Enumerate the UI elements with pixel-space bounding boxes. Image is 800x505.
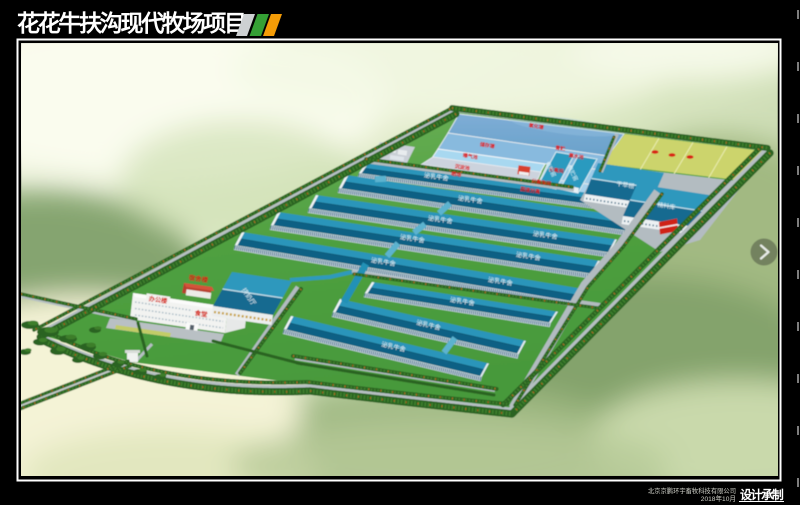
svg-text:花花牛扶沟现代牧场项目: 花花牛扶沟现代牧场项目 (17, 10, 245, 36)
svg-text:晒场: 晒场 (451, 170, 462, 178)
svg-text:青贮: 青贮 (555, 144, 566, 152)
svg-text:设计承制: 设计承制 (740, 487, 784, 502)
svg-text:2018年10月: 2018年10月 (701, 494, 736, 503)
svg-text:北京京鹏环宇畜牧科技有限公司: 北京京鹏环宇畜牧科技有限公司 (648, 486, 736, 495)
